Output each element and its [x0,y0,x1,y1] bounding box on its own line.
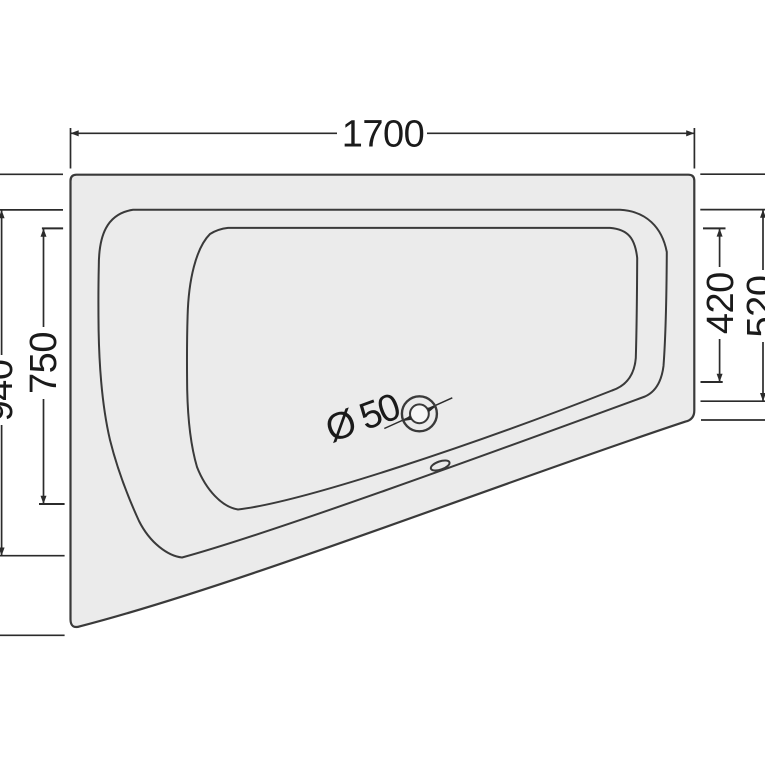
svg-text:940: 940 [0,360,21,422]
svg-text:1700: 1700 [342,114,425,156]
svg-text:750: 750 [23,332,65,394]
svg-text:420: 420 [700,272,742,334]
svg-text:520: 520 [740,276,765,338]
